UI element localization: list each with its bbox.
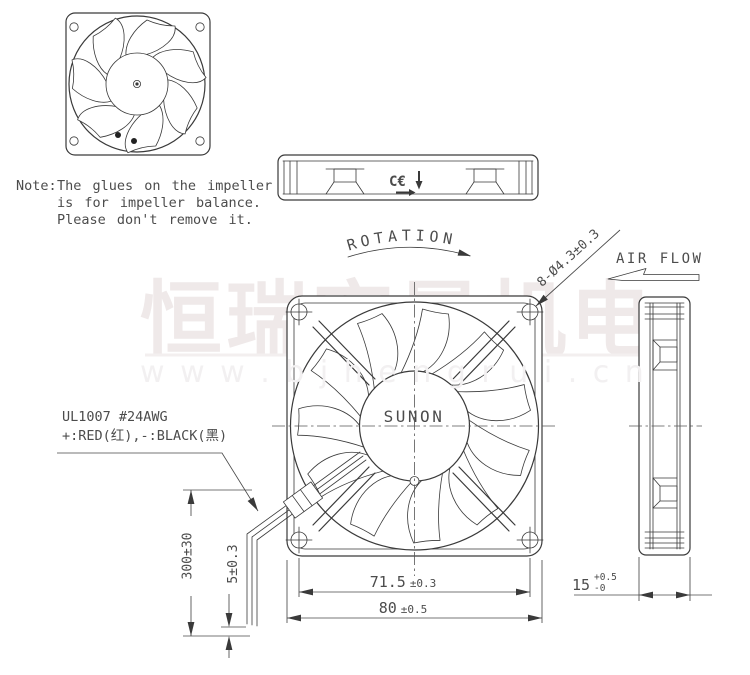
top-profile-view: C€ [278,155,538,200]
thickness-tol-plus: +0.5 [594,572,617,583]
drawing-canvas: 恒瑞宏晟机电 Note: The glues on the impeller i… [0,0,750,675]
dim-arrowhead-icon [188,490,195,504]
watermark-url: w w w . b j h e n g r u i . c n [140,355,647,390]
dim-arrowhead-icon [528,615,542,622]
thickness-tol-minus: -0 [594,583,606,594]
airflow-label: AIR FLOW [616,251,703,267]
note-line: The glues on the impeller [57,178,272,194]
brand-label: SUNON [384,407,445,426]
dim-arrowhead-icon [299,589,313,596]
note-line: Please don't remove it. [57,212,253,228]
rotation-label: ROTATION [345,226,458,254]
small-hub-dot [135,82,138,85]
lead-length-dim: 300±30 [181,533,196,580]
dim-arrowhead-icon [287,615,301,622]
hole-pitch-dim: 71.5±0.3 [370,573,437,591]
note-line: is for impeller balance. [57,195,261,211]
dim-arrowhead-icon [516,589,530,596]
ce-mark-label: C€ [389,174,406,190]
dim-arrowhead-icon [226,613,233,627]
rotation-group: ROTATION [345,226,473,257]
glue-dot [131,138,137,144]
dim-arrowhead-icon [676,592,690,599]
airflow-group: AIR FLOW [608,251,703,281]
front-view-small [66,13,211,158]
frame-size-dim: 80±0.5 [379,599,428,617]
glue-dot [115,132,121,138]
wire-leader-line [57,453,258,511]
strip-length-dim: 5±0.3 [226,544,241,583]
dim-arrowhead-icon [226,636,233,650]
side-view [629,297,702,555]
rotation-arrowhead-icon [458,249,471,256]
fan-technical-drawing: 恒瑞宏晟机电 Note: The glues on the impeller i… [0,0,750,675]
wire-spec-group: UL1007 #24AWG +:RED(红),-:BLACK(黑) [57,409,258,511]
note-block: Note: The glues on the impeller is for i… [16,178,272,228]
note-label: Note: [16,178,57,194]
wire-leader-arrowhead-icon [248,497,258,511]
dim-arrowhead-icon [188,622,195,636]
thickness-dim: 15 [572,576,590,594]
wire-spec-line1: UL1007 #24AWG [62,409,168,425]
wire-spec-line2: +:RED(红),-:BLACK(黑) [62,428,227,444]
dim-arrowhead-icon [639,592,653,599]
svg-text:ROTATION: ROTATION [345,226,458,254]
